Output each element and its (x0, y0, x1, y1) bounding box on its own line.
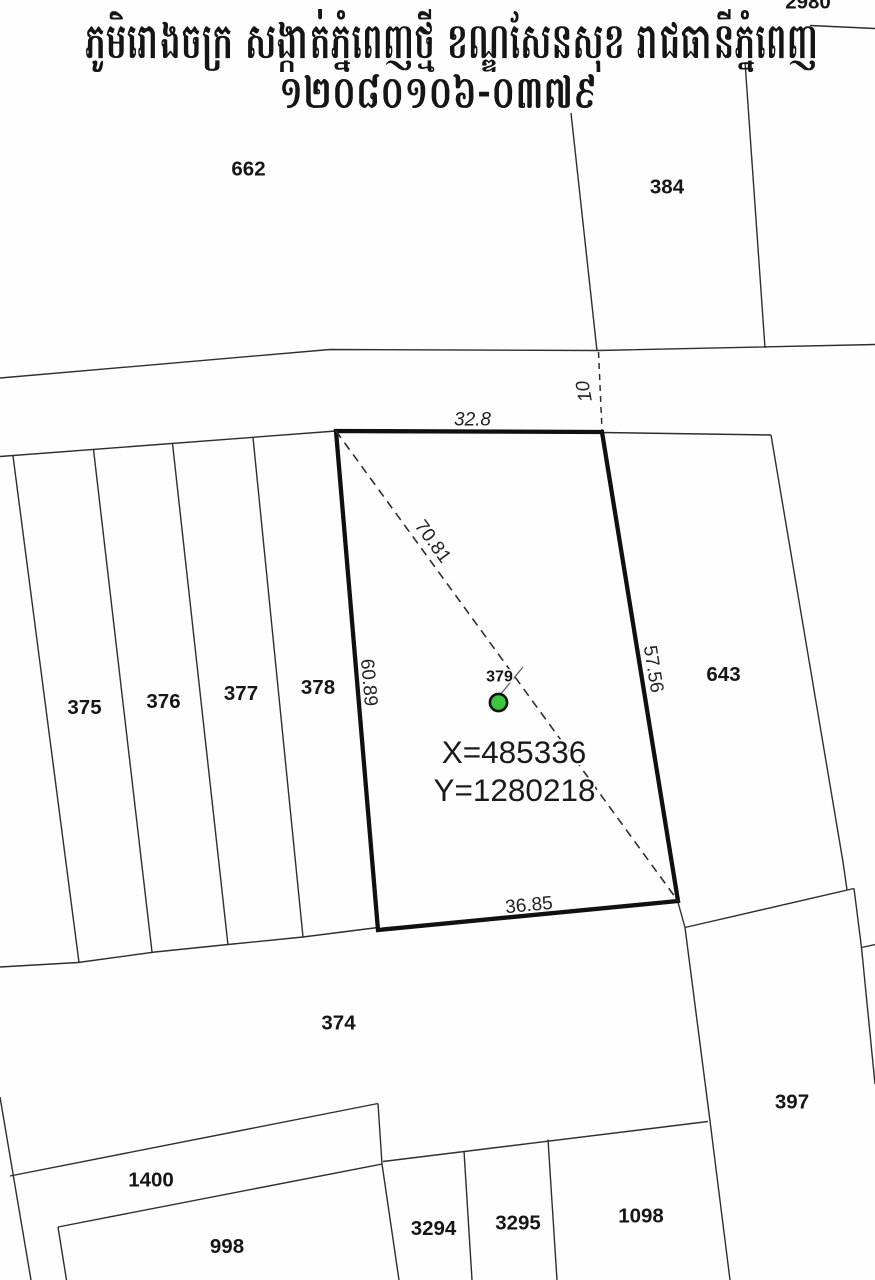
svg-text:379: 379 (486, 669, 513, 686)
svg-text:662: 662 (231, 158, 265, 181)
svg-text:3294: 3294 (411, 1217, 457, 1240)
svg-text:643: 643 (706, 663, 740, 686)
svg-text:998: 998 (210, 1235, 244, 1258)
svg-text:1098: 1098 (618, 1205, 664, 1228)
svg-text:2980: 2980 (785, 0, 831, 14)
svg-text:Y=1280218: Y=1280218 (433, 772, 595, 808)
svg-text:376: 376 (146, 690, 180, 713)
svg-text:60.89: 60.89 (356, 658, 381, 707)
svg-text:3295: 3295 (495, 1212, 541, 1235)
svg-text:32.8: 32.8 (454, 410, 491, 431)
svg-text:378: 378 (301, 676, 335, 699)
svg-text:36.85: 36.85 (504, 893, 553, 918)
svg-text:1400: 1400 (128, 1169, 174, 1192)
svg-text:397: 397 (775, 1091, 809, 1114)
svg-text:374: 374 (321, 1012, 356, 1035)
svg-text:377: 377 (224, 682, 258, 705)
svg-text:384: 384 (650, 176, 685, 199)
svg-text:X=485336: X=485336 (442, 734, 587, 770)
svg-text:10: 10 (572, 379, 596, 404)
svg-text:375: 375 (67, 696, 101, 719)
